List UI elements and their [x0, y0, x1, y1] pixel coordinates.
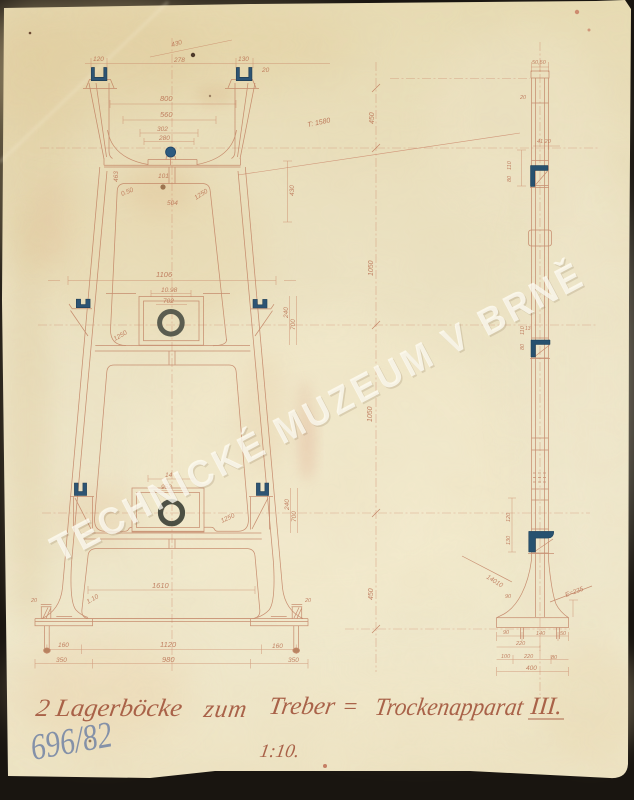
- svg-text:350: 350: [56, 657, 67, 664]
- svg-text:1:10.: 1:10.: [258, 741, 301, 762]
- svg-text:50,50: 50,50: [532, 60, 547, 66]
- svg-text:463: 463: [113, 171, 120, 182]
- svg-text:302: 302: [157, 126, 168, 133]
- svg-text:430: 430: [289, 185, 296, 196]
- svg-text:702: 702: [163, 298, 174, 305]
- svg-text:Treber: Treber: [267, 693, 337, 720]
- svg-text:240: 240: [284, 499, 291, 511]
- svg-text:450: 450: [369, 112, 376, 124]
- svg-text:100: 100: [501, 654, 511, 660]
- svg-text:1120: 1120: [160, 640, 177, 649]
- svg-text:220: 220: [523, 654, 534, 660]
- svg-text:280: 280: [158, 135, 170, 142]
- svg-text:400: 400: [526, 665, 537, 672]
- svg-text:240: 240: [283, 307, 290, 319]
- svg-text:140: 140: [536, 631, 546, 637]
- svg-text:90: 90: [505, 594, 512, 600]
- svg-text:50: 50: [560, 631, 567, 637]
- svg-text:Trockenapparat: Trockenapparat: [373, 694, 526, 721]
- svg-text:120: 120: [93, 56, 104, 63]
- svg-text:160: 160: [272, 643, 283, 650]
- svg-text:504: 504: [167, 200, 178, 207]
- svg-text:101: 101: [158, 173, 169, 180]
- svg-text:41 20: 41 20: [537, 139, 552, 145]
- svg-text:zum: zum: [201, 696, 250, 723]
- svg-text:700: 700: [290, 319, 297, 330]
- svg-text:90: 90: [503, 630, 510, 636]
- svg-text:80: 80: [507, 175, 513, 182]
- svg-text:450: 450: [368, 588, 375, 600]
- svg-text:1610: 1610: [152, 581, 170, 590]
- svg-text:20: 20: [30, 598, 38, 604]
- svg-text:10.98: 10.98: [161, 287, 178, 294]
- svg-text:20: 20: [261, 67, 270, 74]
- svg-text:2 Lagerböcke: 2 Lagerböcke: [34, 695, 184, 722]
- svg-text:278: 278: [173, 57, 185, 64]
- svg-text:800: 800: [160, 94, 173, 103]
- svg-text:1106: 1106: [156, 270, 173, 279]
- svg-text:110: 110: [507, 160, 513, 170]
- svg-text:130: 130: [238, 56, 249, 63]
- svg-text:350: 350: [288, 657, 299, 664]
- svg-text:80: 80: [520, 343, 526, 350]
- svg-text:700: 700: [291, 511, 298, 522]
- svg-text:560: 560: [160, 110, 173, 119]
- svg-text:120: 120: [506, 512, 512, 522]
- svg-text:980: 980: [162, 655, 175, 664]
- svg-text:1050: 1050: [368, 260, 375, 276]
- svg-text:80: 80: [551, 655, 558, 661]
- svg-text:160: 160: [58, 642, 69, 649]
- svg-text:20: 20: [304, 598, 312, 604]
- svg-text:220: 220: [515, 641, 526, 647]
- svg-text:III.: III.: [528, 693, 563, 720]
- svg-text:20: 20: [519, 95, 527, 101]
- svg-text:130: 130: [506, 535, 512, 545]
